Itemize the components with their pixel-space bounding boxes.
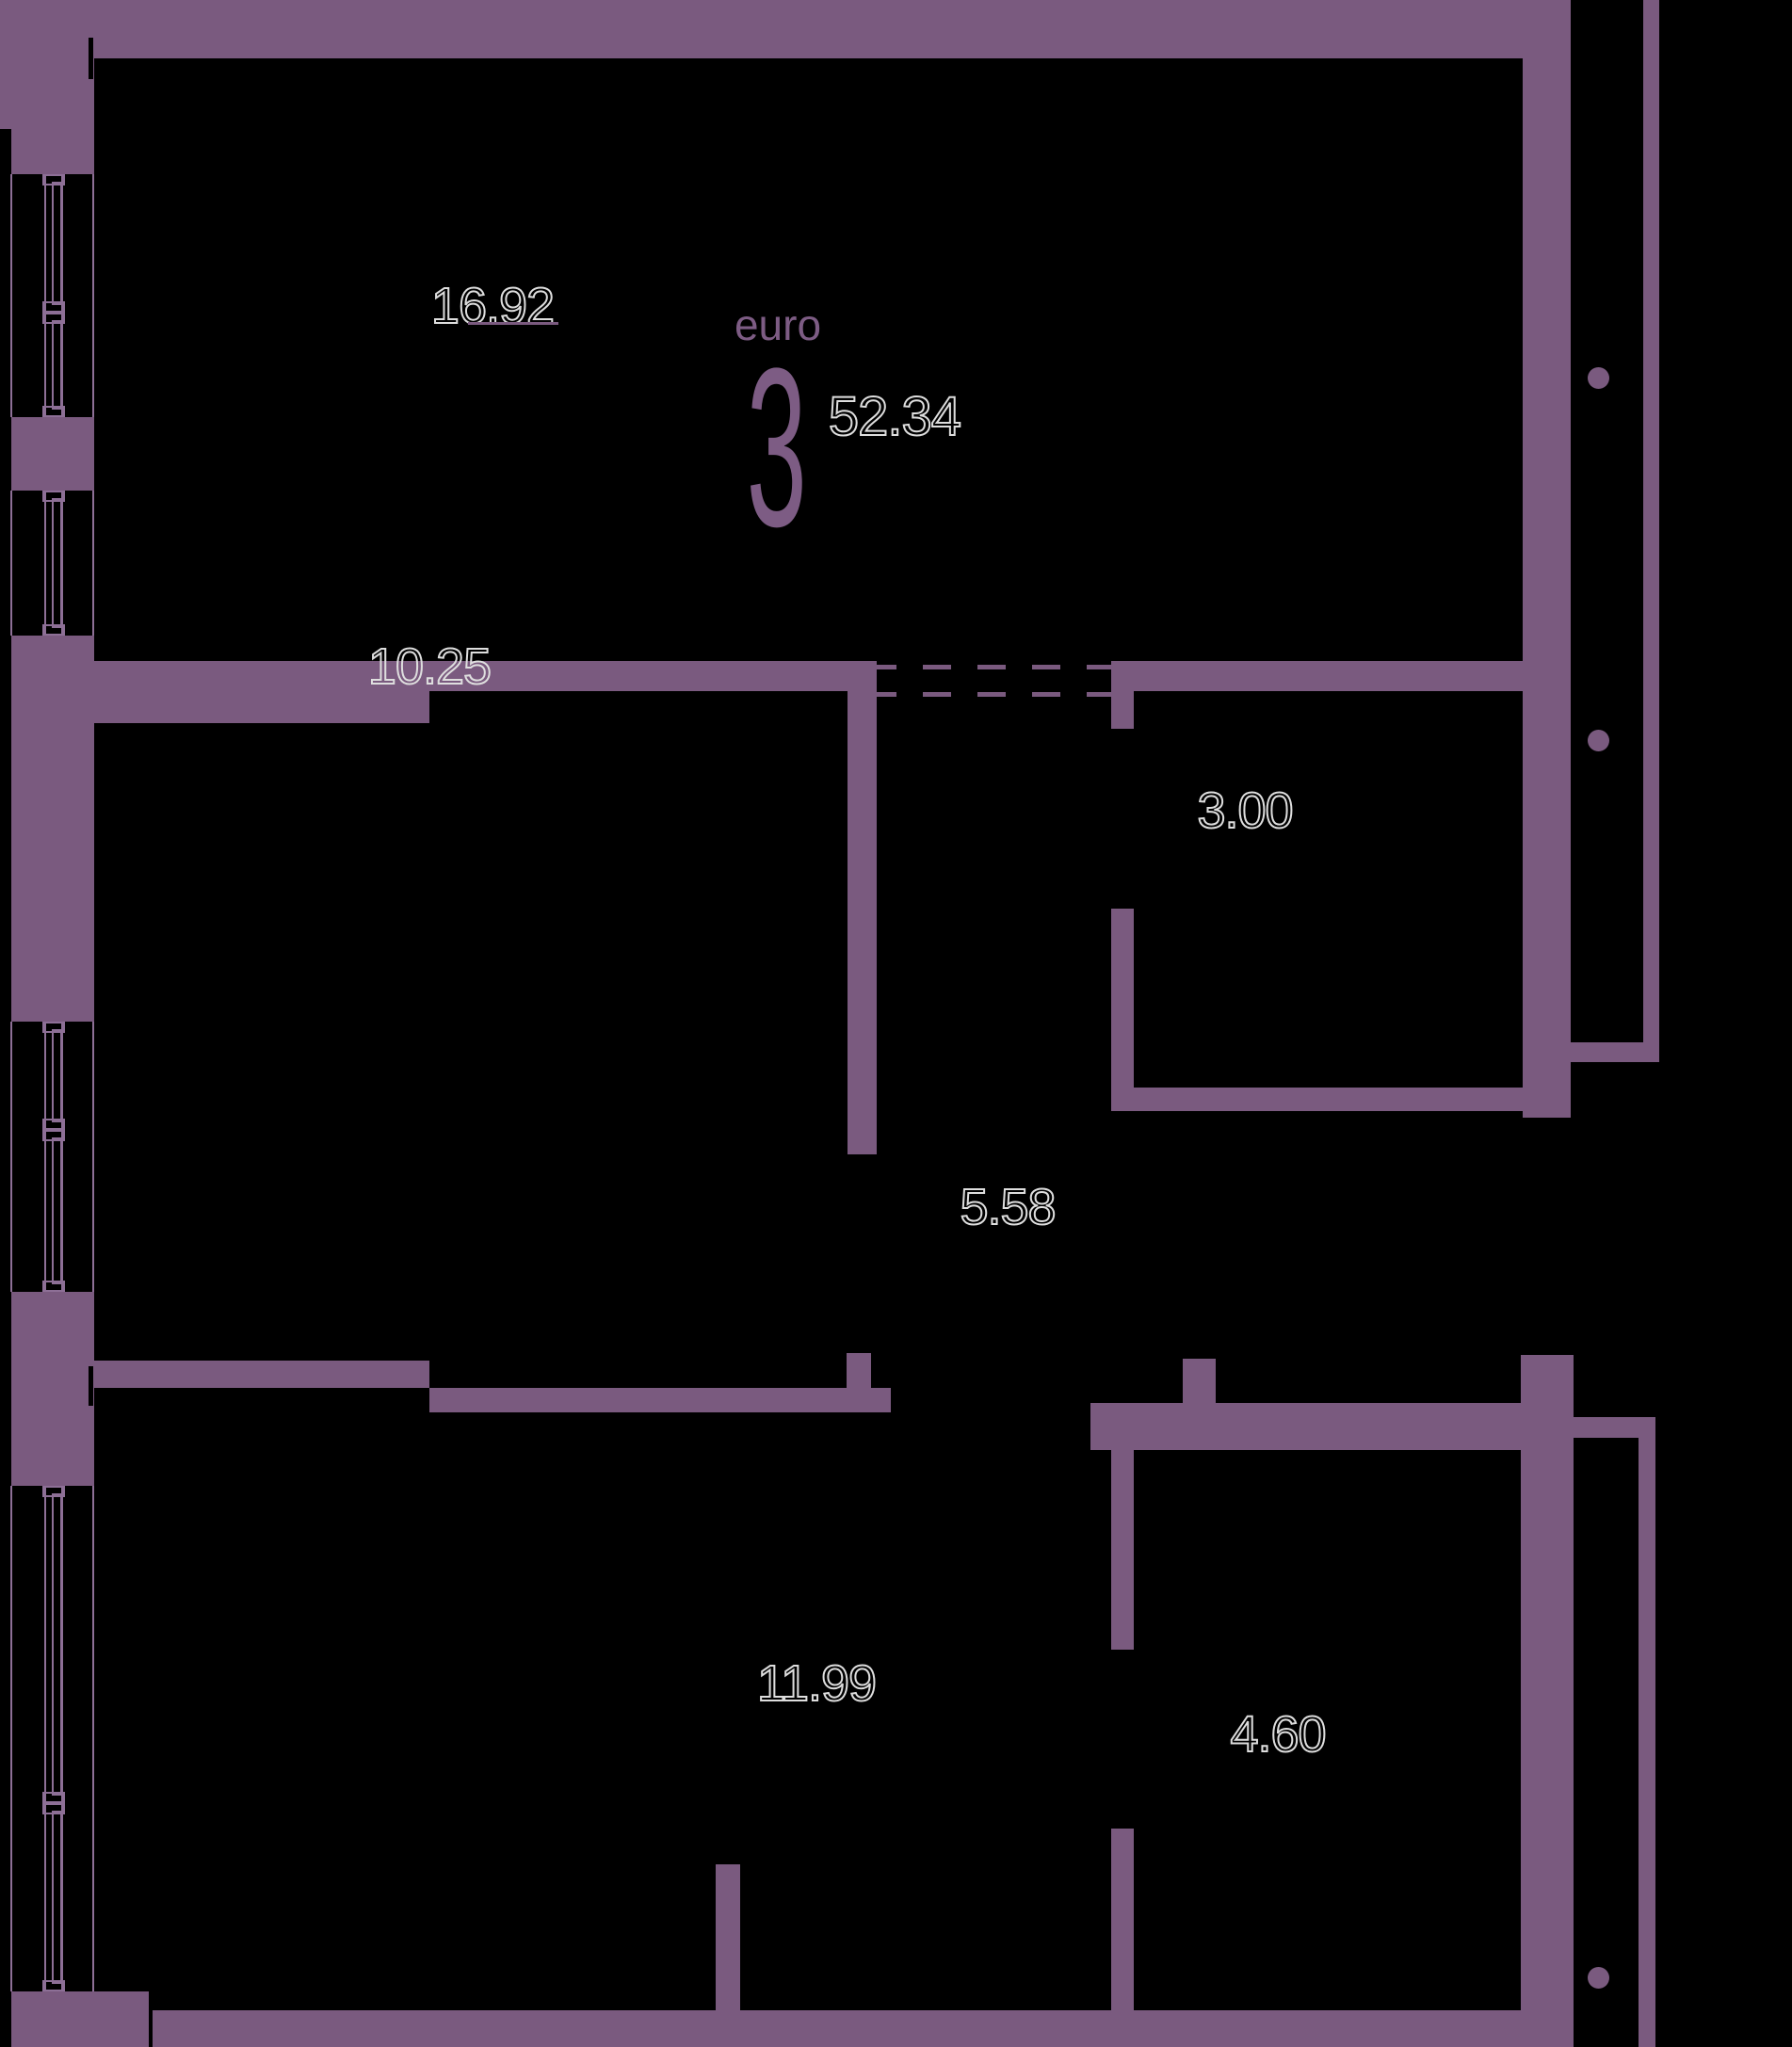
- window-symbol: [52, 1029, 62, 1122]
- wall-bedroom2-inner-stub: [716, 1864, 740, 2010]
- column-dot: [1588, 730, 1609, 751]
- wall-bathroom2-left-upper: [1111, 1450, 1134, 1650]
- room-area-label-living-kitchen: 16.92: [375, 278, 610, 334]
- wall-bathroom1-top: [1111, 661, 1523, 691]
- wall-bottom: [153, 2010, 1574, 2047]
- window-symbol: [52, 1493, 62, 1796]
- balcony-railing-lower: [1639, 1417, 1655, 2047]
- room-area-label-bathroom-1: 3.00: [1127, 782, 1363, 839]
- window-sill-cap: [42, 1119, 65, 1130]
- wall-bathroom2-left-lower: [1111, 1829, 1134, 2010]
- wall-bathroom2-top: [1090, 1403, 1523, 1450]
- column-dot: [1588, 367, 1609, 389]
- window-sill-cap: [42, 624, 65, 636]
- window-sill-cap: [42, 1281, 65, 1292]
- wall-face-line: [92, 174, 94, 417]
- window-sill-cap: [42, 313, 65, 324]
- wall-left-segment: [11, 636, 94, 1022]
- wall-face-line: [10, 491, 12, 636]
- room-area-label-bedroom-2: 11.99: [699, 1655, 934, 1712]
- wall-joint-line: [149, 1991, 153, 2047]
- window-symbol: [52, 320, 62, 410]
- wall-right-lower: [1521, 1355, 1574, 2047]
- wall-face-line: [92, 1022, 94, 1292]
- window-sill-cap: [42, 491, 65, 502]
- wall-bathroom1-left-lower: [1111, 909, 1134, 1088]
- opening-dashed-line: [868, 692, 1115, 697]
- wall-joint-line: [89, 38, 93, 79]
- wall-left-segment: [11, 1292, 94, 1486]
- room-area-label-bedroom-1: 10.25: [312, 638, 547, 695]
- wall-bedroom2-top-stub: [847, 1353, 871, 1388]
- window-symbol: [52, 1811, 62, 1984]
- window-symbol: [52, 498, 62, 628]
- window-sill-cap: [42, 1022, 65, 1033]
- label-underline: [468, 322, 558, 325]
- wall-face-line: [10, 1022, 12, 1292]
- balcony-rail-lower-top: [1574, 1417, 1639, 1438]
- wall-joint-line: [89, 1366, 93, 1406]
- wall-bathroom1-bottom: [1111, 1088, 1523, 1111]
- wall-right-upper: [1523, 0, 1571, 1118]
- wall-face-line: [92, 491, 94, 636]
- total-area-label: 52.34: [791, 388, 998, 444]
- window-sill-cap: [42, 174, 65, 185]
- wall-top: [90, 0, 1571, 58]
- floor-plan-canvas: euro 3 52.34 16.92 10.25 3.00 5.58 11.99…: [0, 0, 1792, 2047]
- wall-left-segment: [11, 417, 94, 491]
- window-sill-cap: [42, 301, 65, 313]
- window-sill-cap: [42, 1130, 65, 1141]
- wall-top-left-corner: [11, 129, 94, 174]
- wall-face-line: [10, 174, 12, 417]
- window-sill-cap: [42, 1980, 65, 1991]
- wall-bedroom2-top-left: [90, 1361, 429, 1388]
- room-area-label-bathroom-2: 4.60: [1160, 1706, 1396, 1763]
- balcony-railing-upper: [1643, 0, 1659, 1062]
- window-sill-cap: [42, 1486, 65, 1497]
- wall-hall-left: [848, 661, 877, 1154]
- window-sill-cap: [42, 1803, 65, 1814]
- wall-bathroom1-left-upper: [1111, 691, 1134, 729]
- column-dot: [1588, 1967, 1609, 1989]
- wall-left-segment: [11, 1991, 149, 2047]
- wall-top-left-corner: [0, 0, 94, 129]
- opening-dashed-line: [868, 665, 1115, 669]
- room-area-label-hallway: 5.58: [890, 1179, 1125, 1235]
- window-sill-cap: [42, 1792, 65, 1803]
- window-sill-cap: [42, 406, 65, 417]
- balcony-rail-upper-bottom: [1571, 1042, 1659, 1062]
- wall-face-line: [10, 1486, 12, 1991]
- window-symbol: [52, 182, 62, 305]
- wall-bathroom2-top-nub: [1183, 1359, 1216, 1403]
- wall-face-line: [92, 1486, 94, 1991]
- window-symbol: [52, 1137, 62, 1284]
- wall-bedroom2-top-right: [429, 1388, 891, 1412]
